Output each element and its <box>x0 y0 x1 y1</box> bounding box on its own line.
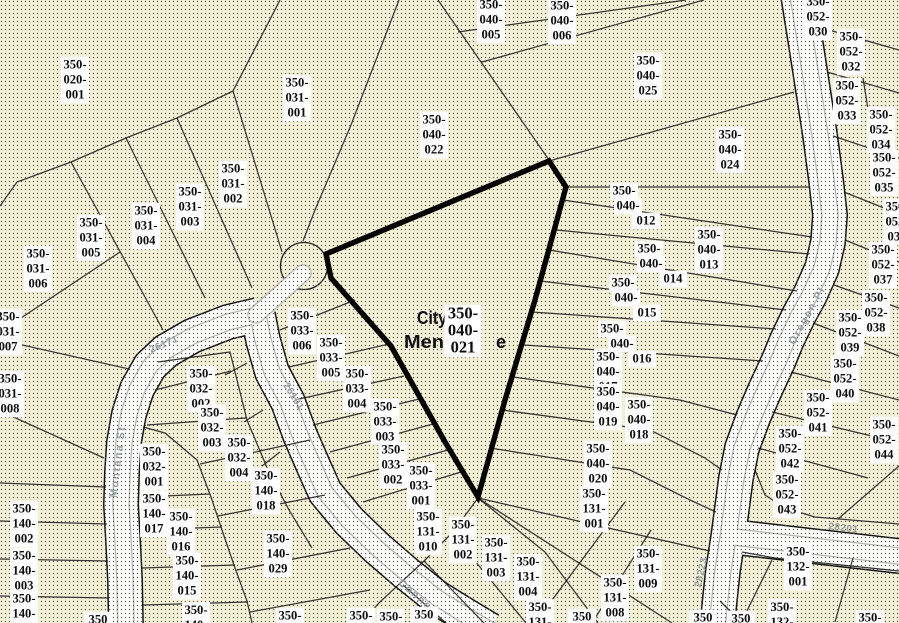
svg-text:036: 036 <box>888 230 899 244</box>
svg-text:350-: 350- <box>254 469 277 483</box>
svg-text:e: e <box>496 332 506 352</box>
svg-text:350-: 350- <box>169 510 192 524</box>
svg-text:131-: 131- <box>416 525 439 539</box>
svg-text:350-: 350- <box>838 311 861 325</box>
svg-text:031-: 031- <box>26 262 49 276</box>
svg-text:005: 005 <box>82 246 101 260</box>
svg-text:350-: 350- <box>806 391 829 405</box>
svg-text:040-: 040- <box>596 400 619 414</box>
svg-text:016: 016 <box>633 352 652 366</box>
svg-text:022: 022 <box>425 143 444 157</box>
svg-text:020: 020 <box>589 472 608 486</box>
svg-text:040-: 040- <box>718 143 741 157</box>
svg-text:140-: 140- <box>169 525 192 539</box>
svg-text:040-: 040- <box>614 291 637 305</box>
svg-text:020-: 020- <box>63 73 86 87</box>
svg-text:004: 004 <box>348 397 368 411</box>
svg-text:040: 040 <box>836 387 855 401</box>
svg-text:044: 044 <box>875 448 895 462</box>
svg-text:006: 006 <box>293 339 312 353</box>
svg-text:350-: 350- <box>627 398 650 412</box>
svg-text:031-: 031- <box>134 219 157 233</box>
svg-text:040-: 040- <box>636 69 659 83</box>
svg-text:131-: 131- <box>603 591 626 605</box>
svg-text:021: 021 <box>451 338 476 357</box>
svg-text:040-: 040- <box>479 13 502 27</box>
svg-text:350-: 350- <box>63 58 86 72</box>
svg-text:131-: 131- <box>582 502 605 516</box>
svg-text:350-: 350- <box>479 0 502 12</box>
svg-text:040-: 040- <box>697 243 720 257</box>
svg-text:019: 019 <box>599 415 618 429</box>
svg-text:140-: 140- <box>12 607 35 621</box>
svg-text:052-: 052- <box>839 45 862 59</box>
svg-text:350-: 350- <box>833 357 856 371</box>
svg-text:350-: 350- <box>885 200 899 214</box>
svg-text:140-: 140- <box>266 547 289 561</box>
svg-text:024: 024 <box>721 158 741 172</box>
svg-text:350-: 350- <box>12 549 35 563</box>
svg-text:350-: 350- <box>697 228 720 242</box>
svg-text:350-: 350- <box>872 151 895 165</box>
svg-text:350-: 350- <box>221 162 244 176</box>
svg-text:031-: 031- <box>285 91 308 105</box>
svg-text:350-: 350- <box>416 510 439 524</box>
svg-text:003: 003 <box>376 430 395 444</box>
svg-text:033-: 033- <box>381 458 404 472</box>
svg-text:006: 006 <box>553 29 572 43</box>
svg-text:350-: 350- <box>864 291 887 305</box>
svg-text:350-: 350- <box>484 536 507 550</box>
svg-text:131-: 131- <box>636 562 659 576</box>
svg-text:015: 015 <box>638 306 657 320</box>
svg-text:052-: 052- <box>872 433 895 447</box>
svg-text:016: 016 <box>172 540 191 554</box>
svg-text:350-: 350- <box>290 309 313 323</box>
svg-text:City: City <box>417 308 447 328</box>
svg-text:031-: 031- <box>79 231 102 245</box>
svg-text:034: 034 <box>872 138 892 152</box>
svg-text:003: 003 <box>487 566 506 580</box>
svg-text:350-: 350- <box>79 216 102 230</box>
svg-text:350: 350 <box>694 611 713 623</box>
svg-text:001: 001 <box>585 517 604 531</box>
svg-text:052-: 052- <box>835 94 858 108</box>
svg-text:350-: 350- <box>134 204 157 218</box>
svg-text:132-: 132- <box>770 615 793 623</box>
svg-text:350-: 350- <box>778 427 801 441</box>
svg-text:013: 013 <box>700 258 719 272</box>
svg-text:033-: 033- <box>290 324 313 338</box>
svg-text:001: 001 <box>288 106 307 120</box>
svg-text:002: 002 <box>224 192 243 206</box>
svg-text:005: 005 <box>322 366 341 380</box>
svg-text:001: 001 <box>412 494 431 508</box>
svg-text:004: 004 <box>137 234 157 248</box>
svg-text:025: 025 <box>639 84 658 98</box>
svg-text:350-: 350- <box>175 554 198 568</box>
svg-text:350-: 350- <box>349 609 372 623</box>
svg-text:350-: 350- <box>770 600 793 614</box>
svg-text:350-: 350- <box>26 247 49 261</box>
svg-text:140-: 140- <box>12 517 35 531</box>
svg-text:010: 010 <box>419 540 438 554</box>
svg-text:018: 018 <box>630 428 649 442</box>
svg-text:001: 001 <box>66 88 85 102</box>
svg-text:350-: 350- <box>189 367 212 381</box>
svg-text:052-: 052- <box>775 488 798 502</box>
svg-text:052-: 052- <box>885 215 899 229</box>
svg-text:040-: 040- <box>627 413 650 427</box>
svg-text:350: 350 <box>89 613 108 623</box>
svg-text:042: 042 <box>781 457 800 471</box>
svg-text:350-: 350- <box>319 336 342 350</box>
svg-text:350-: 350- <box>582 487 605 501</box>
svg-text:033-: 033- <box>409 479 432 493</box>
svg-text:350-: 350- <box>142 445 165 459</box>
svg-text:039: 039 <box>841 341 860 355</box>
svg-text:350-: 350- <box>612 184 635 198</box>
svg-text:350-: 350- <box>586 442 609 456</box>
svg-text:350: 350 <box>732 612 751 623</box>
svg-text:033: 033 <box>838 109 857 123</box>
svg-text:040-: 040- <box>639 257 662 271</box>
svg-text:052-: 052- <box>833 372 856 386</box>
svg-text:350-: 350- <box>596 350 619 364</box>
svg-text:015: 015 <box>178 584 197 598</box>
svg-text:032-: 032- <box>142 460 165 474</box>
svg-text:004: 004 <box>519 585 539 599</box>
svg-text:031-: 031- <box>0 325 20 339</box>
svg-text:350-: 350- <box>184 603 207 617</box>
svg-text:018: 018 <box>257 499 276 513</box>
svg-text:009: 009 <box>639 577 658 591</box>
svg-text:Men: Men <box>404 332 444 352</box>
svg-text:132-: 132- <box>786 560 809 574</box>
svg-text:052-: 052- <box>806 10 829 24</box>
svg-text:350-: 350- <box>422 113 445 127</box>
svg-text:350-: 350- <box>379 610 402 623</box>
svg-text:008: 008 <box>1 402 20 416</box>
svg-text:033-: 033- <box>345 382 368 396</box>
svg-text:350-: 350- <box>786 545 809 559</box>
svg-text:350-: 350- <box>858 611 881 623</box>
svg-text:017: 017 <box>145 522 164 536</box>
svg-text:350-: 350- <box>550 0 573 13</box>
svg-text:350-: 350- <box>409 464 432 478</box>
svg-text:350-: 350- <box>178 185 201 199</box>
svg-text:131-: 131- <box>451 533 474 547</box>
svg-text:035: 035 <box>875 181 894 195</box>
svg-text:350: 350 <box>415 608 434 622</box>
svg-text:043: 043 <box>778 503 797 517</box>
svg-text:004: 004 <box>230 466 250 480</box>
svg-text:350-: 350- <box>775 473 798 487</box>
svg-text:052-: 052- <box>778 442 801 456</box>
svg-text:031-: 031- <box>178 200 201 214</box>
svg-text:350-: 350- <box>285 76 308 90</box>
svg-text:350-: 350- <box>373 400 396 414</box>
svg-text:350-: 350- <box>12 502 35 516</box>
svg-text:032-: 032- <box>227 451 250 465</box>
svg-text:041: 041 <box>809 421 828 435</box>
svg-text:052-: 052- <box>864 306 887 320</box>
svg-text:040-: 040- <box>422 128 445 142</box>
svg-text:040-: 040- <box>596 365 619 379</box>
svg-text:052-: 052- <box>871 258 894 272</box>
svg-text:350-: 350- <box>345 367 368 381</box>
svg-text:040-: 040- <box>610 337 633 351</box>
svg-text:350-: 350- <box>0 310 20 324</box>
svg-text:140-: 140- <box>142 507 165 521</box>
svg-text:003: 003 <box>203 436 222 450</box>
svg-text:131-: 131- <box>516 570 539 584</box>
svg-text:029: 029 <box>269 562 288 576</box>
svg-text:350-: 350- <box>528 600 551 614</box>
svg-text:040-: 040- <box>616 199 639 213</box>
svg-text:052-: 052- <box>872 166 895 180</box>
svg-text:350-: 350- <box>451 518 474 532</box>
svg-text:350-: 350- <box>0 372 22 386</box>
svg-text:350-: 350- <box>718 128 741 142</box>
svg-text:002: 002 <box>15 532 34 546</box>
svg-text:350-: 350- <box>596 385 619 399</box>
svg-text:040-: 040- <box>550 14 573 28</box>
svg-text:140-: 140- <box>12 564 35 578</box>
svg-text:033-: 033- <box>373 415 396 429</box>
svg-text:350-: 350- <box>227 436 250 450</box>
svg-text:350-: 350- <box>871 243 894 257</box>
svg-text:052-: 052- <box>838 326 861 340</box>
svg-text:350-: 350- <box>839 30 862 44</box>
svg-text:052-: 052- <box>806 406 829 420</box>
svg-text:032: 032 <box>842 60 861 74</box>
svg-text:002: 002 <box>454 548 473 562</box>
svg-text:350-: 350- <box>516 555 539 569</box>
svg-text:350-: 350- <box>603 576 626 590</box>
svg-text:350: 350 <box>573 610 592 623</box>
svg-text:140-: 140- <box>184 618 207 623</box>
svg-text:005: 005 <box>482 28 501 42</box>
svg-text:037: 037 <box>874 273 893 287</box>
svg-text:350-: 350- <box>12 592 35 606</box>
svg-text:030: 030 <box>809 25 828 39</box>
svg-text:012: 012 <box>637 214 656 228</box>
svg-text:032-: 032- <box>189 382 212 396</box>
svg-text:001: 001 <box>789 575 808 589</box>
svg-text:350-: 350- <box>637 242 660 256</box>
svg-text:350-: 350- <box>142 492 165 506</box>
svg-text:350-: 350- <box>835 79 858 93</box>
svg-text:031-: 031- <box>221 177 244 191</box>
svg-text:131-: 131- <box>528 615 551 623</box>
svg-text:350-: 350- <box>636 54 659 68</box>
svg-text:350-: 350- <box>611 276 634 290</box>
svg-text:001: 001 <box>145 475 164 489</box>
svg-text:140-: 140- <box>254 484 277 498</box>
svg-text:350-: 350- <box>600 322 623 336</box>
svg-text:031-: 031- <box>0 387 22 401</box>
svg-text:140-: 140- <box>175 569 198 583</box>
svg-text:033-: 033- <box>319 351 342 365</box>
svg-text:038: 038 <box>867 321 886 335</box>
svg-text:003: 003 <box>181 215 200 229</box>
svg-text:006: 006 <box>29 277 48 291</box>
svg-text:040-: 040- <box>586 457 609 471</box>
svg-text:032-: 032- <box>200 421 223 435</box>
svg-text:350-: 350- <box>806 0 829 9</box>
svg-text:008: 008 <box>606 606 625 620</box>
svg-text:007: 007 <box>0 340 17 354</box>
svg-text:002: 002 <box>384 473 403 487</box>
svg-text:003: 003 <box>15 579 34 593</box>
svg-text:350-: 350- <box>200 406 223 420</box>
svg-text:350-: 350- <box>266 532 289 546</box>
svg-text:350-: 350- <box>381 443 404 457</box>
svg-text:052-: 052- <box>869 123 892 137</box>
svg-text:350-: 350- <box>872 418 895 432</box>
svg-text:131-: 131- <box>484 551 507 565</box>
svg-text:014: 014 <box>664 272 684 286</box>
svg-text:350-: 350- <box>278 609 301 623</box>
svg-text:350-: 350- <box>636 547 659 561</box>
svg-text:350-: 350- <box>869 108 892 122</box>
